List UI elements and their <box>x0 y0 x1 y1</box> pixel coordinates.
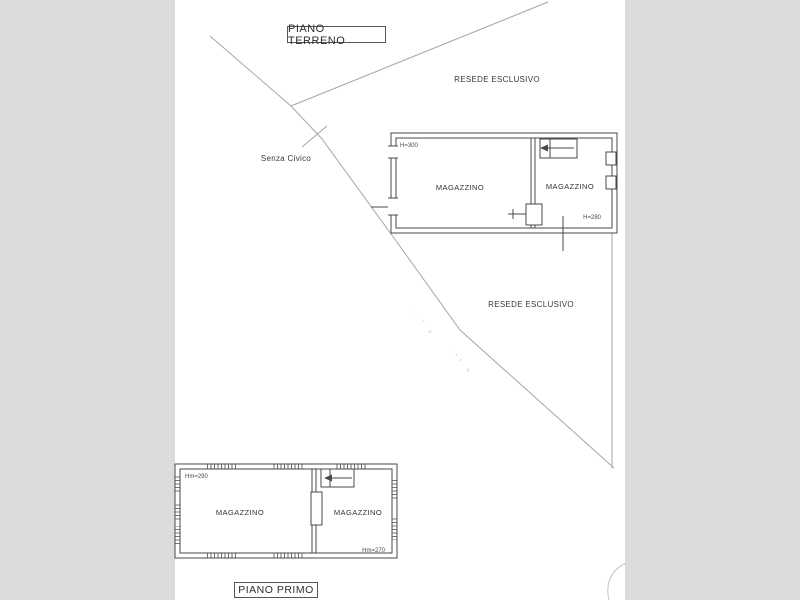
wall-hatch <box>207 464 238 469</box>
wall-hatch <box>175 476 180 494</box>
stamp-arc <box>608 563 626 600</box>
room-label: MAGAZZINO <box>216 508 264 517</box>
floor-title-first-text: PIANO PRIMO <box>238 584 314 596</box>
wall-hatch <box>272 464 303 469</box>
floor-title-first: PIANO PRIMO <box>234 582 318 598</box>
boundary-tick-mark <box>302 126 327 147</box>
wall-hatch <box>335 464 366 469</box>
staircase <box>321 469 354 487</box>
wall-hatch <box>175 526 180 544</box>
room-label: MAGAZZINO <box>334 508 382 517</box>
flue-block <box>311 492 322 525</box>
ground-floor-plan: H=300 MAGAZZINO MAGAZZINO H=280 <box>371 133 617 251</box>
floor-title-ground-text: PIANO TERRENO <box>288 23 385 47</box>
wall-hatch <box>175 502 180 520</box>
room-height-note: H=280 <box>583 215 602 221</box>
floor-title-ground: PIANO TERRENO <box>287 26 386 43</box>
survey-marks-a: · ·· · t · b <box>406 303 433 337</box>
room-label: MAGAZZINO <box>546 182 594 191</box>
staircase <box>540 139 577 158</box>
room-label: MAGAZZINO <box>436 183 484 192</box>
boundary-upper-line <box>291 2 548 106</box>
room-height-note: H=300 <box>400 143 419 149</box>
room-height-note: Hm=290 <box>185 474 209 480</box>
stair-arrow-head <box>324 475 332 482</box>
wall-hatch <box>207 553 238 558</box>
wall-hatch <box>272 553 303 558</box>
wall-opening <box>388 146 398 158</box>
window <box>606 176 616 189</box>
yard-label-middle: RESEDE ESCLUSIVO <box>488 300 574 309</box>
wall-hatch <box>392 516 397 540</box>
street-label: Senza Civico <box>261 154 312 163</box>
room-height-note: Hm=270 <box>362 548 386 554</box>
first-floor-plan: Hm=290 MAGAZZINO MAGAZZINO Hm=270 <box>175 464 397 558</box>
scanned-floorplan-sheet: · ·· · t · b · · + t · b <box>0 0 800 600</box>
wall-opening <box>388 198 398 215</box>
stair-arrow-head <box>540 145 548 152</box>
wall-hatch <box>392 480 397 500</box>
door-frame <box>526 204 542 225</box>
boundary-diagonal-line <box>210 36 614 468</box>
yard-label-top: RESEDE ESCLUSIVO <box>454 75 540 84</box>
floorplan-drawing: · ·· · t · b · · + t · b <box>0 0 800 600</box>
window <box>606 152 616 165</box>
survey-marks-b: · · + t · b <box>445 343 471 375</box>
